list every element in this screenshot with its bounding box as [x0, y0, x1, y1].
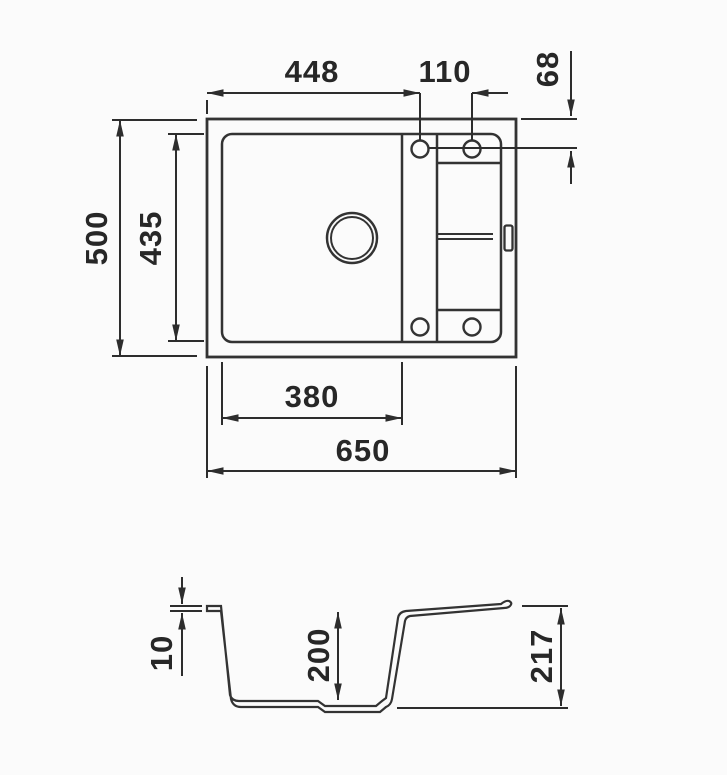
- dim-label-110: 110: [418, 54, 471, 89]
- drawing-svg: 448 110 68 500 435: [0, 0, 727, 775]
- drain-circle-inner: [331, 217, 373, 259]
- dim-label-650: 650: [336, 433, 391, 468]
- dim-rim-thickness-10: 10: [144, 577, 202, 676]
- sink-technical-drawing: 448 110 68 500 435: [0, 0, 727, 775]
- dim-bowl-inner-depth-200: 200: [301, 612, 338, 700]
- dim-tap-offset-448: 448: [207, 54, 420, 114]
- dim-tap-spacing-110: 110: [418, 54, 508, 140]
- dim-label-217: 217: [524, 629, 559, 684]
- drain-circle-outer: [327, 213, 377, 263]
- rim-handle-notch: [505, 226, 513, 251]
- tap-hole-bottom-right: [464, 319, 481, 336]
- section-view: 10 200 217: [144, 577, 568, 712]
- plan-view: 448 110 68 500 435: [79, 51, 577, 478]
- dim-label-200: 200: [301, 628, 336, 683]
- dim-label-68: 68: [530, 51, 565, 87]
- dim-bowl-width-380: 380: [222, 362, 402, 425]
- dim-overall-height-217: 217: [397, 606, 568, 708]
- dim-label-448: 448: [285, 54, 340, 89]
- dim-bowl-depth-435: 435: [133, 134, 204, 341]
- dim-label-10: 10: [144, 635, 179, 671]
- dim-overall-width-650: 650: [207, 366, 516, 478]
- dim-label-500: 500: [79, 211, 114, 266]
- dim-label-380: 380: [285, 379, 340, 414]
- tap-hole-top-left: [412, 141, 429, 158]
- sink-section-profile: [207, 601, 511, 712]
- tap-hole-bottom-left: [412, 319, 429, 336]
- dim-label-435: 435: [133, 211, 168, 266]
